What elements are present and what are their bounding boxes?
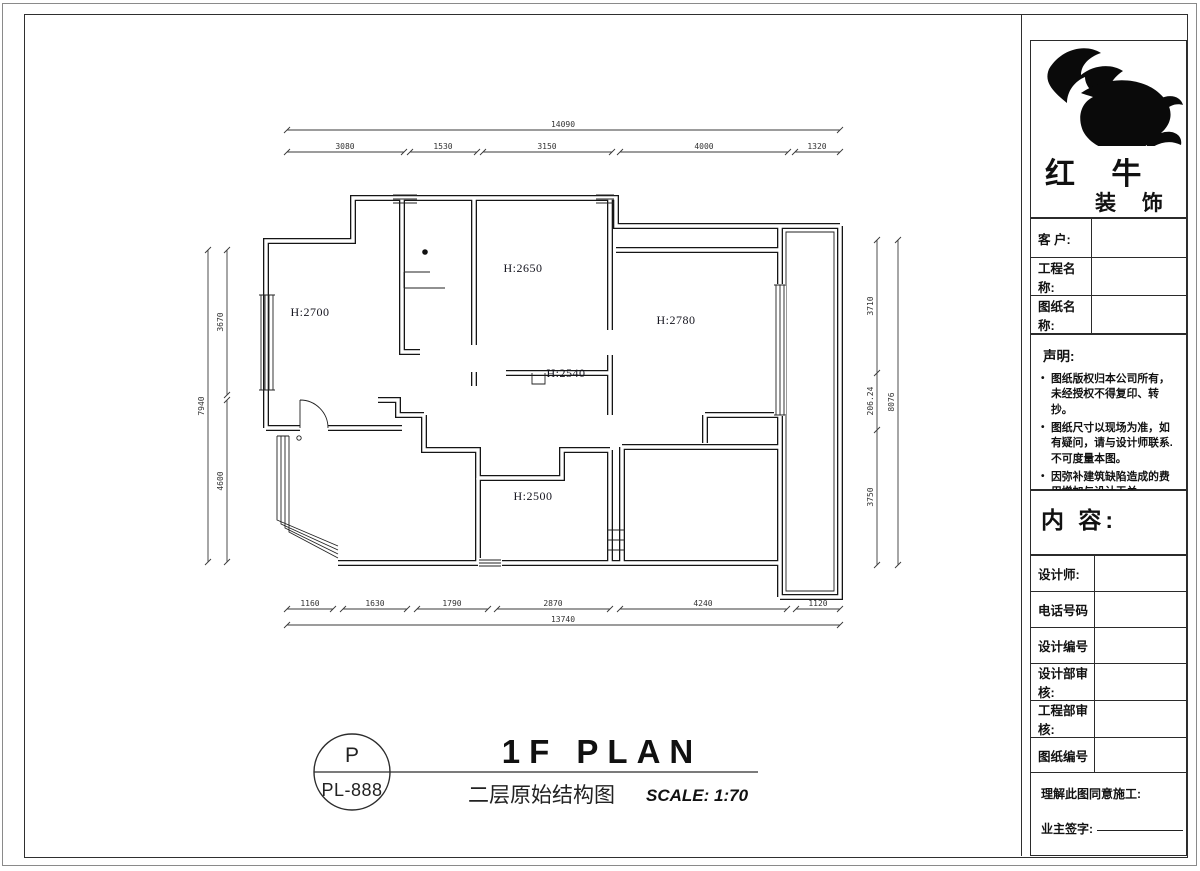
bubble-code: PL-888 — [321, 780, 382, 800]
statement-item: 图纸版权归本公司所有，未经授权不得复印、转抄。 — [1041, 372, 1180, 418]
dim-label: 1320 — [807, 142, 826, 151]
windows-and-details — [259, 195, 834, 591]
walls — [266, 198, 840, 597]
phone-label: 电话号码 — [1031, 592, 1095, 627]
owner-signature-text: 业主签字: — [1041, 822, 1093, 836]
row-drawing-number: 图纸编号 — [1030, 737, 1187, 773]
dim-label: 4240 — [693, 599, 712, 608]
approval-text: 理解此图同意施工: — [1041, 785, 1186, 802]
drawing-name-label: 图纸名称: — [1031, 296, 1092, 333]
dim-label: 3150 — [537, 142, 556, 151]
content-label: 内 容: — [1041, 501, 1186, 535]
plan-title-cn: 二层原始结构图 — [468, 784, 615, 807]
dim-label: 206.24 — [866, 386, 875, 415]
dim-top-total: 14090 — [551, 120, 575, 129]
engineering-dept-review-label: 工程部审核: — [1031, 701, 1095, 737]
bubble-letter: P — [345, 744, 359, 767]
statement-box: 声明: 图纸版权归本公司所有，未经授权不得复印、转抄。 图纸尺寸以现场为准，如有… — [1030, 334, 1187, 490]
door-pivot-icon — [297, 436, 301, 440]
dot-symbol-icon — [422, 249, 428, 255]
dim-bottom-total: 13740 — [551, 615, 575, 624]
room-label: H:2540 — [547, 366, 586, 380]
design-dept-review-label: 设计部审核: — [1031, 664, 1095, 700]
drawing-sheet: H:2700 H:2650 H:2780 H:2540 H:2500 — [0, 0, 1200, 871]
room-label: H:2650 — [504, 261, 543, 275]
dim-label: 3750 — [866, 487, 875, 506]
signature-box: 理解此图同意施工: 业主签字: — [1030, 772, 1187, 856]
room-label: H:2500 — [514, 489, 553, 503]
signature-line — [1097, 830, 1183, 831]
designer-label: 设计师: — [1031, 556, 1095, 591]
row-design-dept-review: 设计部审核: — [1030, 663, 1187, 701]
dim-label: 3080 — [335, 142, 354, 151]
door-opening — [300, 423, 328, 433]
dim-label: 2870 — [543, 599, 562, 608]
dim-label: 1790 — [442, 599, 461, 608]
dim-label: 4600 — [216, 471, 225, 490]
dim-label: 1120 — [808, 599, 827, 608]
room-label: H:2700 — [291, 305, 330, 319]
dim-label: 1530 — [433, 142, 452, 151]
drawing-title-block: P PL-888 1F PLAN 二层原始结构图 SCALE: 1:70 — [314, 733, 758, 810]
dim-label: 3670 — [216, 312, 225, 331]
plan-title-en: 1F PLAN — [502, 733, 703, 770]
owner-signature-label: 业主签字: — [1041, 820, 1186, 837]
row-project-name: 工程名称: — [1030, 257, 1187, 296]
company-logo-box: 红 牛 装 饰 — [1030, 40, 1187, 218]
content-box: 内 容: — [1030, 490, 1187, 555]
red-bull-logo-icon — [1031, 41, 1185, 146]
statement-title: 声明: — [1043, 345, 1180, 365]
row-customer: 客 户: — [1030, 218, 1187, 258]
row-designer: 设计师: — [1030, 555, 1187, 592]
design-number-label: 设计编号 — [1031, 628, 1095, 663]
dim-label: 3710 — [866, 296, 875, 315]
dim-label: 1160 — [300, 599, 319, 608]
room-label: H:2780 — [657, 313, 696, 327]
row-design-number: 设计编号 — [1030, 627, 1187, 664]
customer-label: 客 户: — [1031, 219, 1092, 257]
plan-scale: SCALE: 1:70 — [646, 786, 749, 805]
drawing-number-label: 图纸编号 — [1031, 738, 1095, 772]
dim-label: 4000 — [694, 142, 713, 151]
walls-core — [266, 198, 840, 597]
floor-plan-canvas: H:2700 H:2650 H:2780 H:2540 H:2500 — [0, 0, 1200, 871]
window-right-icon — [774, 285, 786, 415]
project-name-label: 工程名称: — [1031, 258, 1092, 295]
room-labels: H:2700 H:2650 H:2780 H:2540 H:2500 — [291, 261, 696, 503]
dim-right-total: 8076 — [887, 392, 896, 411]
dim-left-total: 7940 — [197, 396, 206, 415]
company-name-sub: 装 饰 — [1095, 187, 1173, 217]
row-drawing-name: 图纸名称: — [1030, 295, 1187, 334]
row-engineering-dept-review: 工程部审核: — [1030, 700, 1187, 738]
statement-item: 图纸尺寸以现场为准，如有疑问，请与设计师联系. 不可度量本图。 — [1041, 421, 1180, 467]
dim-label: 1630 — [365, 599, 384, 608]
row-phone: 电话号码 — [1030, 591, 1187, 628]
